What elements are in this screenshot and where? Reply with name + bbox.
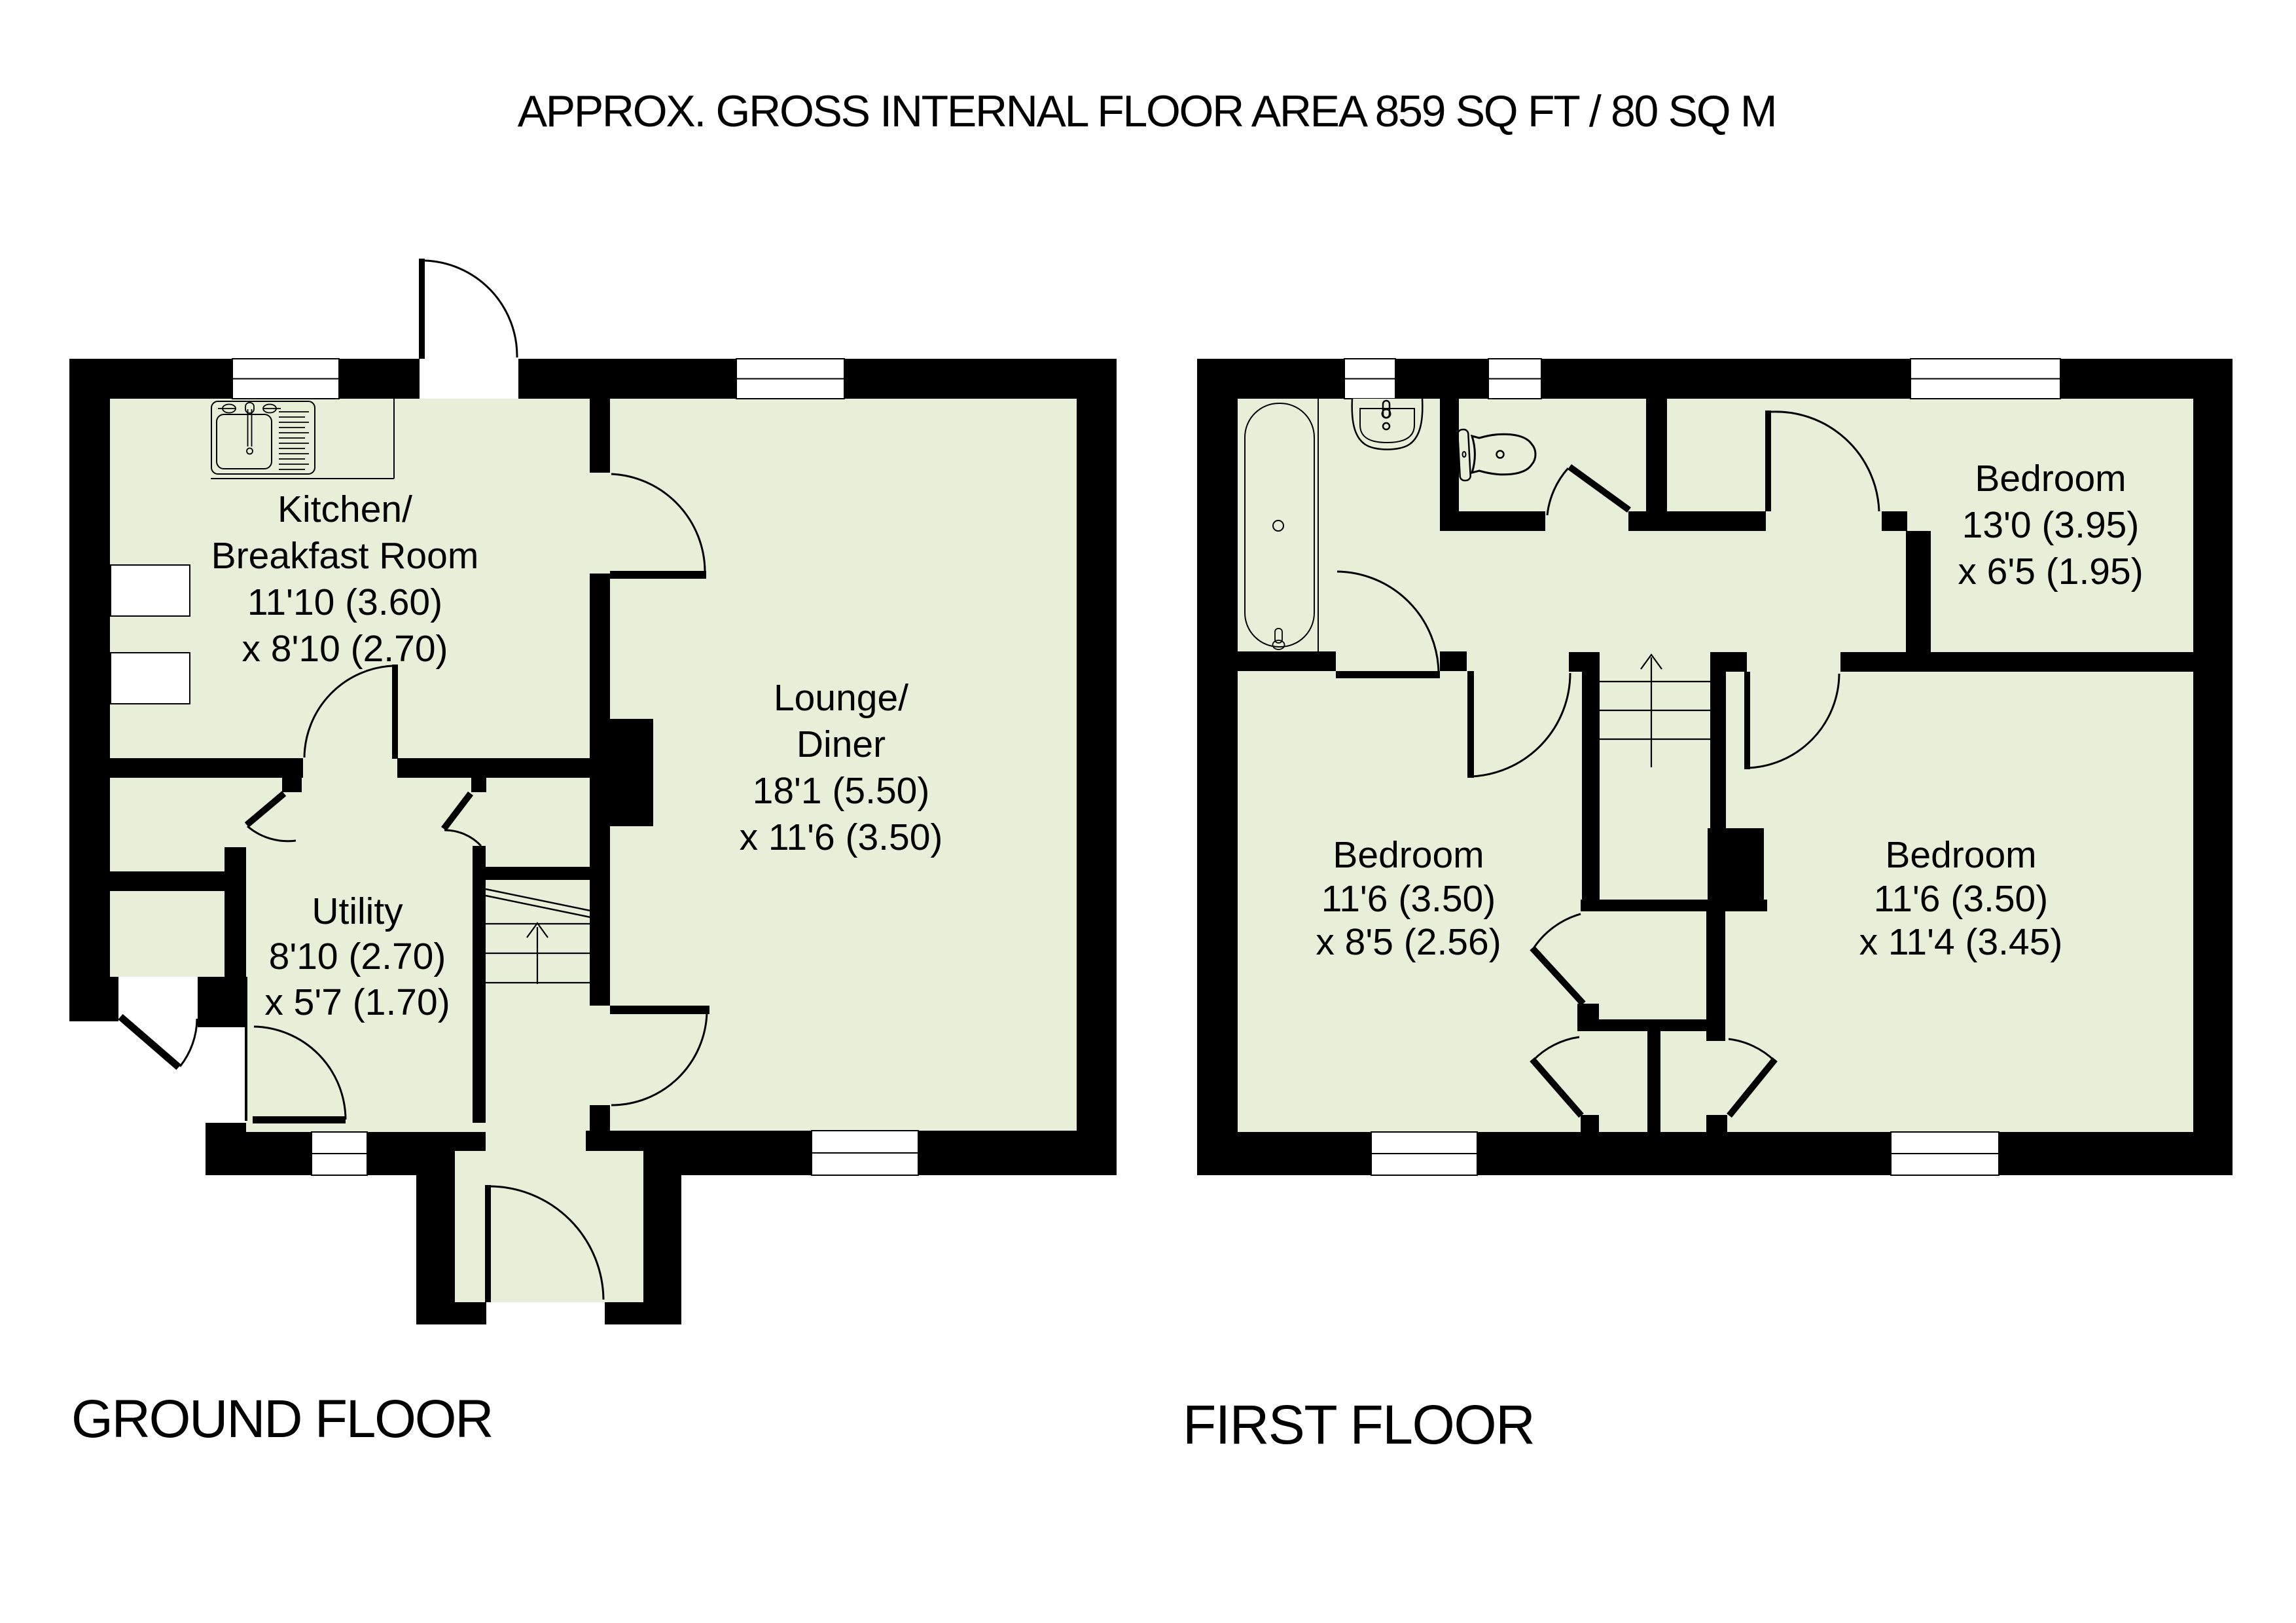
svg-text:GROUND FLOOR: GROUND FLOOR <box>71 1389 492 1449</box>
svg-text:13'0 (3.95): 13'0 (3.95) <box>1962 504 2140 546</box>
svg-text:Breakfast Room: Breakfast Room <box>211 535 479 577</box>
svg-text:Lounge/: Lounge/ <box>774 677 908 719</box>
svg-text:11'6 (3.50): 11'6 (3.50) <box>1874 878 2049 920</box>
svg-text:Utility: Utility <box>312 890 403 932</box>
svg-text:11'10 (3.60): 11'10 (3.60) <box>247 581 442 623</box>
svg-text:FIRST FLOOR: FIRST FLOOR <box>1183 1394 1534 1455</box>
svg-text:x 6'5 (1.95): x 6'5 (1.95) <box>1958 551 2143 593</box>
svg-text:x 11'4 (3.45): x 11'4 (3.45) <box>1859 921 2063 963</box>
svg-text:x 11'6 (3.50): x 11'6 (3.50) <box>740 816 943 858</box>
svg-text:x 8'10 (2.70): x 8'10 (2.70) <box>242 628 448 670</box>
svg-text:Kitchen/: Kitchen/ <box>278 488 412 530</box>
svg-text:x 8'5 (2.56): x 8'5 (2.56) <box>1316 921 1501 963</box>
svg-text:18'1 (5.50): 18'1 (5.50) <box>753 770 930 812</box>
svg-text:Bedroom: Bedroom <box>1975 458 2126 500</box>
svg-text:APPROX. GROSS INTERNAL FLOOR A: APPROX. GROSS INTERNAL FLOOR AREA 859 SQ… <box>518 86 1776 136</box>
svg-text:11'6 (3.50): 11'6 (3.50) <box>1321 878 1496 920</box>
svg-text:x 5'7 (1.70): x 5'7 (1.70) <box>264 981 450 1023</box>
svg-text:Bedroom: Bedroom <box>1885 834 2036 876</box>
svg-text:Diner: Diner <box>797 723 886 765</box>
svg-text:8'10 (2.70): 8'10 (2.70) <box>269 936 446 977</box>
svg-text:Bedroom: Bedroom <box>1333 834 1484 876</box>
